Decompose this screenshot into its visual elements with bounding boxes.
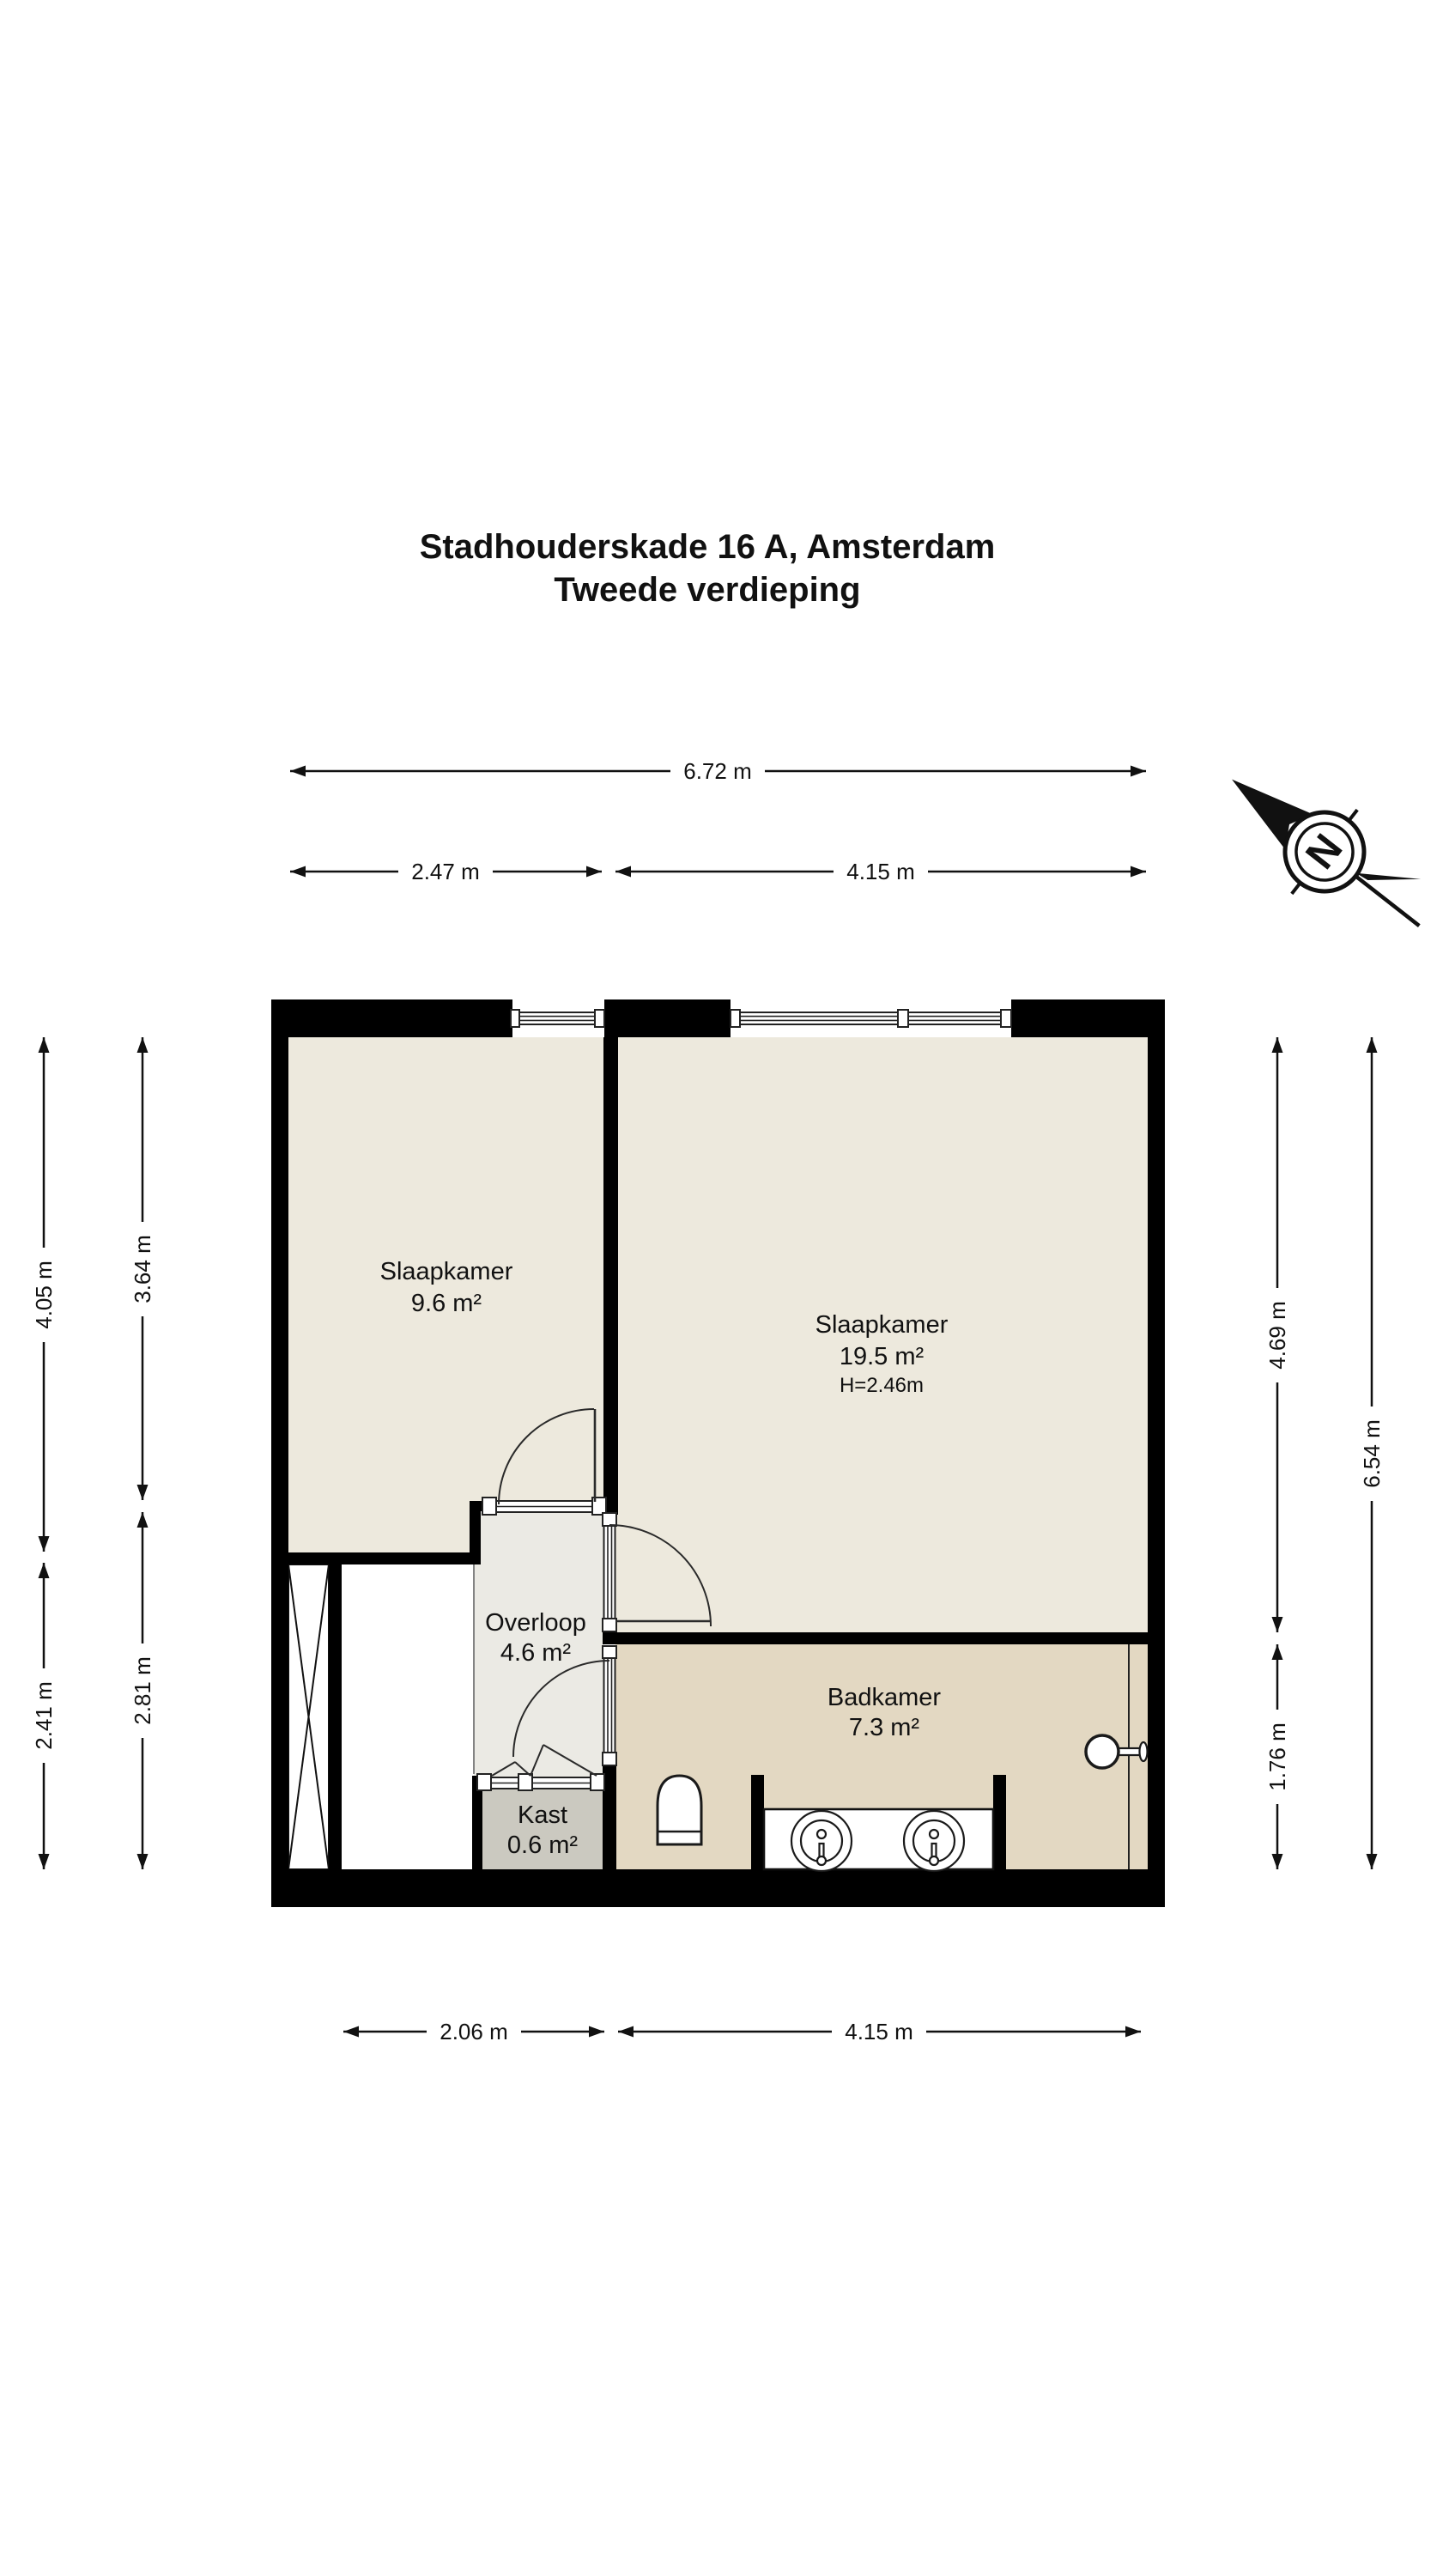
dim-label-right-inner-lower: 1.76 m bbox=[1264, 1722, 1290, 1791]
dim-bottom-right: 4.15 m bbox=[618, 2016, 1141, 2047]
bedroom-large-area: 19.5 m² bbox=[840, 1343, 925, 1370]
dim-bottom-left: 2.06 m bbox=[343, 2016, 604, 2047]
page-title: Stadhouderskade 16 A, Amsterdam Tweede v… bbox=[420, 528, 996, 609]
bedroom-large-ceiling-height: H=2.46m bbox=[840, 1374, 924, 1397]
page-title-line1: Stadhouderskade 16 A, Amsterdam bbox=[420, 528, 996, 566]
landing-label: Overloop bbox=[485, 1609, 586, 1637]
window-3 bbox=[908, 1010, 1011, 1027]
dim-label-top-right: 4.15 m bbox=[846, 859, 915, 884]
toilet-icon bbox=[658, 1776, 701, 1844]
bedroom-small-label: Slaapkamer bbox=[380, 1258, 513, 1285]
north-compass-icon: N bbox=[1199, 738, 1449, 968]
sink-basin-2 bbox=[904, 1811, 964, 1871]
bathroom-label: Badkamer bbox=[828, 1684, 942, 1711]
window-1 bbox=[511, 1010, 604, 1027]
dim-left-inner-upper: 3.64 m bbox=[127, 1037, 158, 1500]
closet-label: Kast bbox=[518, 1801, 567, 1829]
landing-area: 4.6 m² bbox=[500, 1639, 572, 1667]
dim-right-inner-lower: 1.76 m bbox=[1262, 1644, 1293, 1869]
page-title-line2: Tweede verdieping bbox=[554, 571, 860, 609]
dim-label-top-left: 2.47 m bbox=[411, 859, 480, 884]
dim-label-right-outer: 6.54 m bbox=[1359, 1419, 1385, 1488]
bedroom-small-area: 9.6 m² bbox=[411, 1290, 482, 1317]
dim-label-bottom-right: 4.15 m bbox=[845, 2019, 913, 2044]
dim-label-bottom-left: 2.06 m bbox=[440, 2019, 508, 2044]
dim-top-left: 2.47 m bbox=[290, 856, 602, 887]
dim-label-left-outer-upper: 4.05 m bbox=[31, 1261, 57, 1329]
bedroom-large-label: Slaapkamer bbox=[815, 1311, 949, 1339]
shaft-x-box bbox=[288, 1564, 329, 1869]
closet-area: 0.6 m² bbox=[507, 1832, 579, 1859]
dim-label-left-inner-lower: 2.81 m bbox=[130, 1656, 155, 1725]
dim-right-inner-upper: 4.69 m bbox=[1262, 1037, 1293, 1632]
dim-label-right-inner-upper: 4.69 m bbox=[1264, 1301, 1290, 1370]
bathroom-area: 7.3 m² bbox=[849, 1714, 920, 1741]
sink-basin-1 bbox=[791, 1811, 852, 1871]
dim-label-top-total: 6.72 m bbox=[683, 758, 752, 784]
dim-left-outer-lower: 2.41 m bbox=[28, 1563, 59, 1869]
dim-top-total: 6.72 m bbox=[290, 756, 1146, 787]
dim-label-left-outer-lower: 2.41 m bbox=[31, 1681, 57, 1750]
floorplan-page: Stadhouderskade 16 A, Amsterdam Tweede v… bbox=[0, 0, 1449, 2576]
dim-left-inner-lower: 2.81 m bbox=[127, 1512, 158, 1869]
dim-top-right: 4.15 m bbox=[615, 856, 1146, 887]
window-2 bbox=[731, 1010, 908, 1027]
dim-left-outer-upper: 4.05 m bbox=[28, 1037, 59, 1552]
floor-plan bbox=[271, 999, 1165, 1907]
dim-right-outer: 6.54 m bbox=[1356, 1037, 1387, 1869]
dim-label-left-inner-upper: 3.64 m bbox=[130, 1235, 155, 1303]
